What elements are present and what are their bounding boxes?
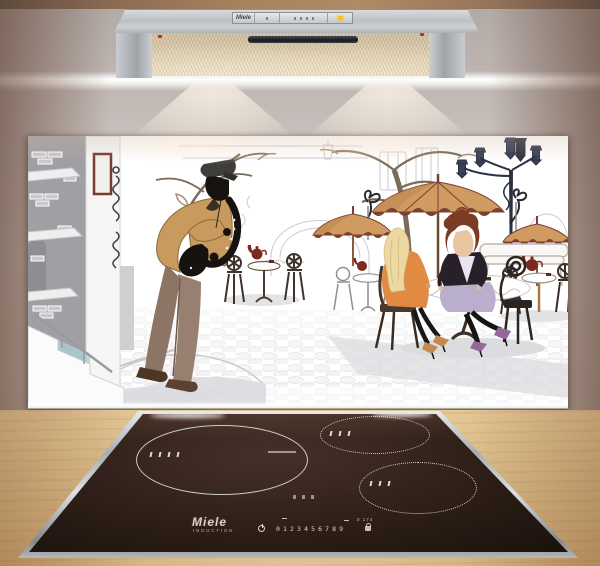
zone-tick-marks: [330, 431, 350, 436]
hood-side-right: [427, 33, 465, 78]
hood-indicator-right: [420, 33, 424, 36]
hood-control-strip: Miele: [232, 12, 353, 24]
zone-select-marks: [293, 495, 314, 499]
left-building: [28, 136, 134, 409]
hood-fan-level-buttons: [279, 13, 328, 23]
hood-handle: [248, 36, 358, 43]
aux-markings: 0 174: [357, 517, 373, 522]
hood-side-left: [116, 33, 154, 78]
cooktop-glass: Miele INDUCTION 0123456789 0 174: [0, 405, 600, 565]
lock-icon: [365, 526, 371, 531]
street-cafe-artwork: [28, 136, 568, 409]
hood-brand-label: Miele: [233, 15, 254, 21]
hood-indicator-left: [158, 35, 162, 38]
cooktop-subbrand-label: INDUCTION: [193, 528, 234, 533]
splashback-panel: [28, 136, 568, 409]
amber-led-icon: [338, 16, 343, 20]
kitchen-photo: Miele: [0, 0, 600, 566]
scale-dash: [282, 518, 287, 519]
power-icon: [258, 525, 265, 532]
zone-tick-marks: [150, 452, 179, 457]
hood-power-button: [254, 13, 279, 23]
zone-tick-marks: [370, 481, 390, 486]
scale-dash: [344, 520, 349, 521]
large-left-zone: [136, 425, 308, 495]
induction-cooktop: Miele INDUCTION 0123456789 0 174: [0, 405, 600, 565]
bottom-right-zone: [359, 462, 477, 514]
teapot: [248, 245, 274, 263]
hanging-lantern: [514, 138, 527, 162]
hood-light-button: [327, 13, 352, 23]
zone-print: [268, 451, 296, 453]
cooktop-brand-label: Miele: [192, 516, 227, 528]
power-level-scale: 0123456789: [276, 525, 346, 533]
